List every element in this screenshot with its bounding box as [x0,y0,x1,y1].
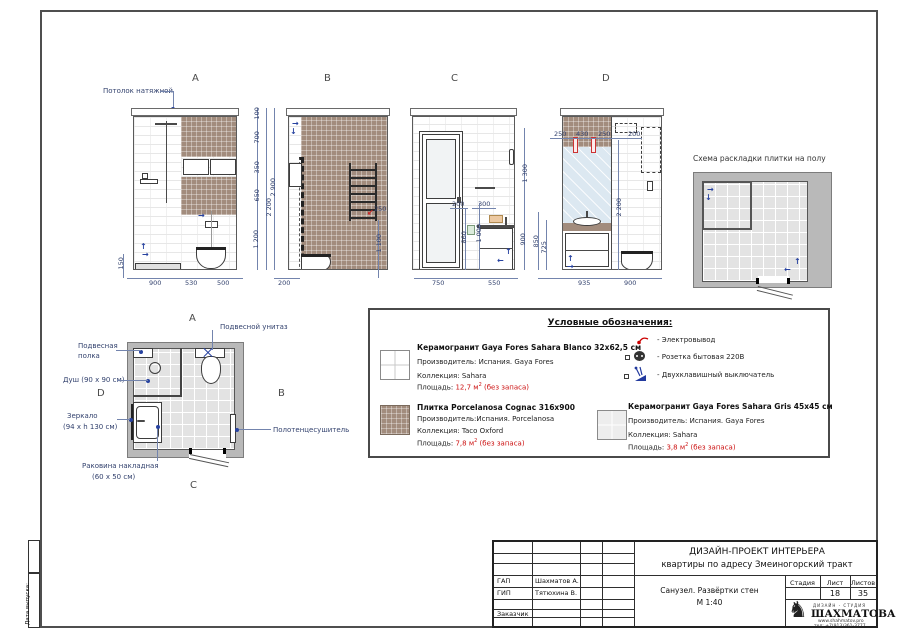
sink-bowl [573,217,601,226]
gap-name: Шахматов А. [535,578,579,585]
holder [647,181,653,191]
dim-label: 900 [624,280,636,287]
leader-line [116,350,141,351]
socket-pin [641,355,643,357]
dim-label: 700 [254,131,261,143]
area-label: Площадь: [628,443,664,451]
table-line [785,587,876,588]
legend-box: Условные обозначения: Керамогранит Gaya … [368,308,830,458]
cabinet-dashed [641,127,661,173]
socket-icon [634,351,645,361]
date-label: Дата выпуска: [25,583,31,625]
dim-label: 650 [254,189,261,201]
socket-pin [636,355,638,357]
direction-arrow-icon: ↓ [705,194,712,202]
dim-label: 250 [598,131,610,138]
area-label: Площадь: [417,439,453,447]
table-line [532,542,533,626]
direction-arrow-icon: ← [497,257,504,265]
shower-drain [149,362,161,374]
shower-shelf [140,179,158,184]
leader-line [160,91,174,92]
door-opening [758,276,789,283]
note-shower: Душ (90 x 90 см) [63,376,124,385]
socket-box-icon [625,355,630,360]
table-line [494,575,876,576]
date-strip-top-cell [28,540,40,573]
dim-label: 900 [149,280,161,287]
elevation-b-label: B [324,74,331,84]
dim-label: 250 [374,206,386,213]
door-post [223,448,226,454]
ceiling-band [410,108,517,116]
dim-label: 200 [278,280,290,287]
sheets-label: Листов [850,579,876,587]
sconce-electrical [591,137,596,153]
sconce-electrical [573,137,578,153]
niche [289,163,302,187]
tile-collection: Коллекция: Taco Oxford [417,428,503,435]
note-mirror-2: (94 x h 130 см) [63,423,117,432]
shower-tray [135,263,181,270]
dim-label: 250 [554,131,566,138]
note-toilet: Подвесной унитаз [220,323,288,332]
dim-label: 1 200 [253,230,260,249]
tile-swatch-gray [597,410,627,440]
towel-bar [475,187,495,189]
tile-swatch-white [380,350,410,380]
dim-label: 2 900 [270,178,277,197]
plan-faucet [137,420,145,422]
direction-arrow-icon: ↓ [290,128,297,136]
sheet-title-line1: Санузел. Развёртки стен [634,586,785,595]
red-pointer-icon: ↙ [367,209,374,217]
accessory-green [467,225,475,235]
leader-line [117,380,148,381]
dim-label: 430 [576,131,588,138]
table-line [602,542,603,626]
dim-label: 1 000 [476,224,483,243]
symbol-label: - Двухклавишный выключатель [657,372,774,379]
sheet-label: Лист [820,579,850,587]
customer-label: Заказчик [497,611,529,618]
elevation-c-label: C [451,74,458,84]
area-note: (без запаса) [477,439,524,447]
ceiling-band [286,108,390,116]
dim-line [550,138,642,139]
faucet [505,217,507,225]
gip-label: ГИП [497,590,511,597]
dim-line [538,278,662,279]
dim-label: 500 [217,280,229,287]
table-line [494,587,634,588]
table-line [494,563,634,564]
plan-sink [136,406,159,439]
note-mirror-1: Зеркало [67,412,98,421]
plan-label-b: B [278,389,285,399]
dim-line [524,128,525,270]
tile-swatch-brown [380,405,410,435]
toilet-seat [301,254,331,257]
dim-label: 200 [452,201,464,208]
toilet-seat [621,251,653,254]
door-leaf [757,286,793,300]
dim-label: 350 [254,161,261,173]
wall-fixture [509,149,514,165]
project-title-line2: квартиры по адресу Змеиногорский тракт [634,560,880,570]
dim-label: 530 [185,280,197,287]
electrical-outlet-icon [636,335,650,345]
leader-line [157,429,158,461]
dim-label: 935 [578,280,590,287]
dim-line [414,278,518,279]
tile-name: Керамогранит Gaya Fores Sahara Gris 45x4… [628,403,833,411]
area-value: 12,7 м [455,383,478,391]
plan-toilet-bowl [201,356,221,384]
dim-label: 150 [118,257,125,269]
leader-line [212,330,213,350]
tile-manufacturer: Производитель:Испания. Porcelanosa [417,416,554,423]
dim-label: 2 200 [266,198,273,217]
tile-area: Площадь: 12,7 м2 (без запаса) [417,383,529,391]
door-panel [426,139,456,199]
dim-label: 725 [541,241,548,253]
tile-name: Керамогранит Gaya Fores Sahara Blanco 32… [417,344,641,352]
elevation-b: → ↓ ↙ 250 1 100 2 900 200 [288,108,388,286]
tile-collection: Коллекция: Sahara [628,432,697,439]
dim-label: 200 [628,131,640,138]
hand-shower [142,173,148,179]
niche-shelf [183,159,209,175]
switch-icon [632,365,650,383]
area-label: Площадь: [417,383,453,391]
area-note: (без запаса) [688,443,735,451]
tile-manufacturer: Производитель: Испания. Gaya Fores [417,359,553,366]
area-value: 3,8 м [666,443,685,451]
gip-name: Тятюхина В. [535,590,577,597]
leader-line [239,429,271,430]
area-note: (без запаса) [482,383,529,391]
knight-logo-icon: ♞ [788,600,808,622]
tile-manufacturer: Производитель: Испания. Gaya Fores [628,418,764,425]
sheet-number: 18 [820,589,850,598]
direction-arrow-icon: → [198,212,205,220]
elevation-a: → ↑ → 100 700 350 650 1 200 2 200 150 90… [133,108,237,286]
note-sink-1: Раковина накладная [82,462,159,471]
ceiling-band [131,108,239,116]
dim-label: 900 [520,233,527,245]
direction-arrow-icon: → [142,251,149,259]
direction-arrow-icon: ← [784,266,791,274]
dim-line [266,108,267,270]
plan-label-d: D [97,389,105,399]
elevation-d: ↑ → 250 430 250 200 2 200 850 725 935 90… [562,108,662,286]
dim-line [472,208,496,209]
shower-column [166,121,167,203]
door-post [756,278,759,284]
switch-box-icon [624,374,629,379]
toilet-seat [196,247,226,250]
faucet [586,211,588,217]
symbol-label: - Электровывод [657,337,715,344]
dim-label: 550 [488,280,500,287]
dim-label: 1 300 [522,164,529,183]
floor-plan [127,342,244,458]
wall-b: → ↓ ↙ [288,116,388,270]
drawing-sheet: A B C D Потолок натяжной → ↑ → [0,0,900,637]
wall-d: ↑ → [562,116,662,270]
wall-a: → ↑ → [133,116,237,270]
drawer-line [565,250,609,251]
symbol-label: - Розетка бытовая 220В [657,354,744,361]
direction-arrow-icon: ↑ [794,258,801,266]
tile-name: Плитка Porcelanosa Cognac 316x900 [417,404,575,412]
elevation-a-label: A [192,74,199,84]
elevation-d-label: D [602,74,610,84]
plan-label-a: A [189,314,196,324]
floor-tile-scheme: Схема раскладки плитки на полу → ↓ ← ↑ [688,150,840,308]
table-line [494,553,634,554]
gap-label: ГАП [497,578,510,585]
tile-collection: Коллекция: Sahara [417,373,486,380]
dim-label: 850 [533,235,540,247]
accessory-box [489,215,503,223]
shower-head [155,123,177,125]
area-value: 7,8 м [455,439,474,447]
sheet-title-line2: М 1:40 [634,598,785,607]
elevation-c: ← ↑ 200 300 860 1 000 1 300 900 750 550 [412,108,515,286]
tile-area: Площадь: 3,8 м2 (без запаса) [628,443,736,451]
door-post [787,278,790,284]
note-towel: Полотенцесушитель [273,426,349,435]
ceiling-band [560,108,664,116]
dim-label: 860 [461,231,468,243]
logo-phone: тел: +7(913)361-3777 [814,624,866,629]
partition-line [611,117,612,270]
note-sink-2: (60 x 50 см) [92,473,135,482]
direction-arrow-icon: ↑ [505,248,512,256]
title-block: ГАП Шахматов А. ГИП Тятюхина В. Заказчик… [492,540,878,628]
scheme-title: Схема раскладки плитки на полу [693,154,826,163]
plan-label-c: C [190,481,197,491]
legend-title: Условные обозначения: [500,318,720,328]
table-line [580,542,581,626]
tile-area: Площадь: 7,8 м2 (без запаса) [417,439,525,447]
dim-label: 750 [432,280,444,287]
niche-shelf [210,159,236,175]
wall-c: ← ↑ [412,116,515,270]
dim-label: 100 [254,107,261,119]
direction-arrow-icon: → [567,263,574,270]
dim-label: 2 200 [616,198,623,217]
plan-mirror [131,404,133,440]
brown-tile-zone [181,177,237,215]
brown-tile-zone [181,117,237,157]
project-title-line1: ДИЗАЙН-ПРОЕКТ ИНТЕРЬЕРА [634,547,880,557]
note-shelf-1: Подвесная [78,342,118,351]
note-shelf-2: полка [78,352,100,361]
dim-label: 1 100 [376,234,383,253]
stage-label: Стадия [785,579,820,587]
table-line [494,599,634,600]
direction-arrow-icon: ↑ [140,243,147,251]
date-strip-cell: Дата выпуска: [28,573,40,628]
door-panel [426,203,456,263]
leader-line [117,419,130,420]
sheets-total: 35 [850,589,876,598]
